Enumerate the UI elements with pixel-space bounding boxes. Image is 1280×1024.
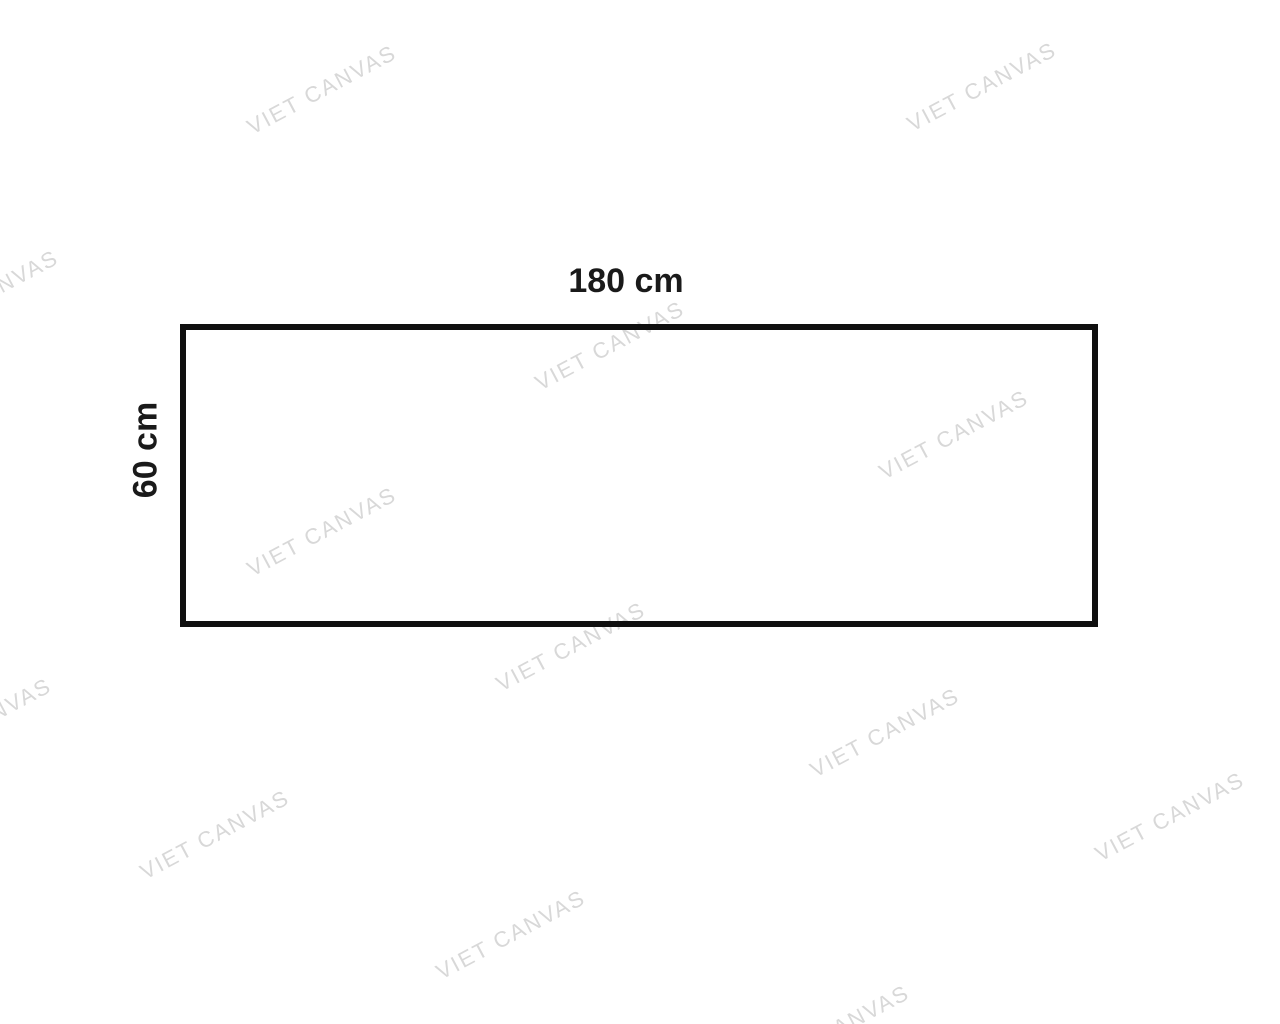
canvas-rectangle (180, 324, 1098, 627)
dimension-diagram: VIET CANVASVIET CANVASVIET CANVASVIET CA… (0, 0, 1280, 1024)
height-dimension-label: 60 cm (127, 402, 166, 498)
watermark-text: VIET CANVAS (1091, 767, 1249, 868)
watermark-text: VIET CANVAS (806, 683, 964, 784)
watermark-text: VIET CANVAS (0, 245, 63, 346)
watermark-text: VIET CANVAS (432, 885, 590, 986)
watermark-text: VIET CANVAS (756, 980, 914, 1024)
watermark-text: VIET CANVAS (243, 40, 401, 141)
width-dimension-label: 180 cm (568, 262, 683, 301)
watermark-text: VIET CANVAS (136, 785, 294, 886)
watermark-text: VIET CANVAS (0, 673, 56, 774)
watermark-text: VIET CANVAS (903, 37, 1061, 138)
